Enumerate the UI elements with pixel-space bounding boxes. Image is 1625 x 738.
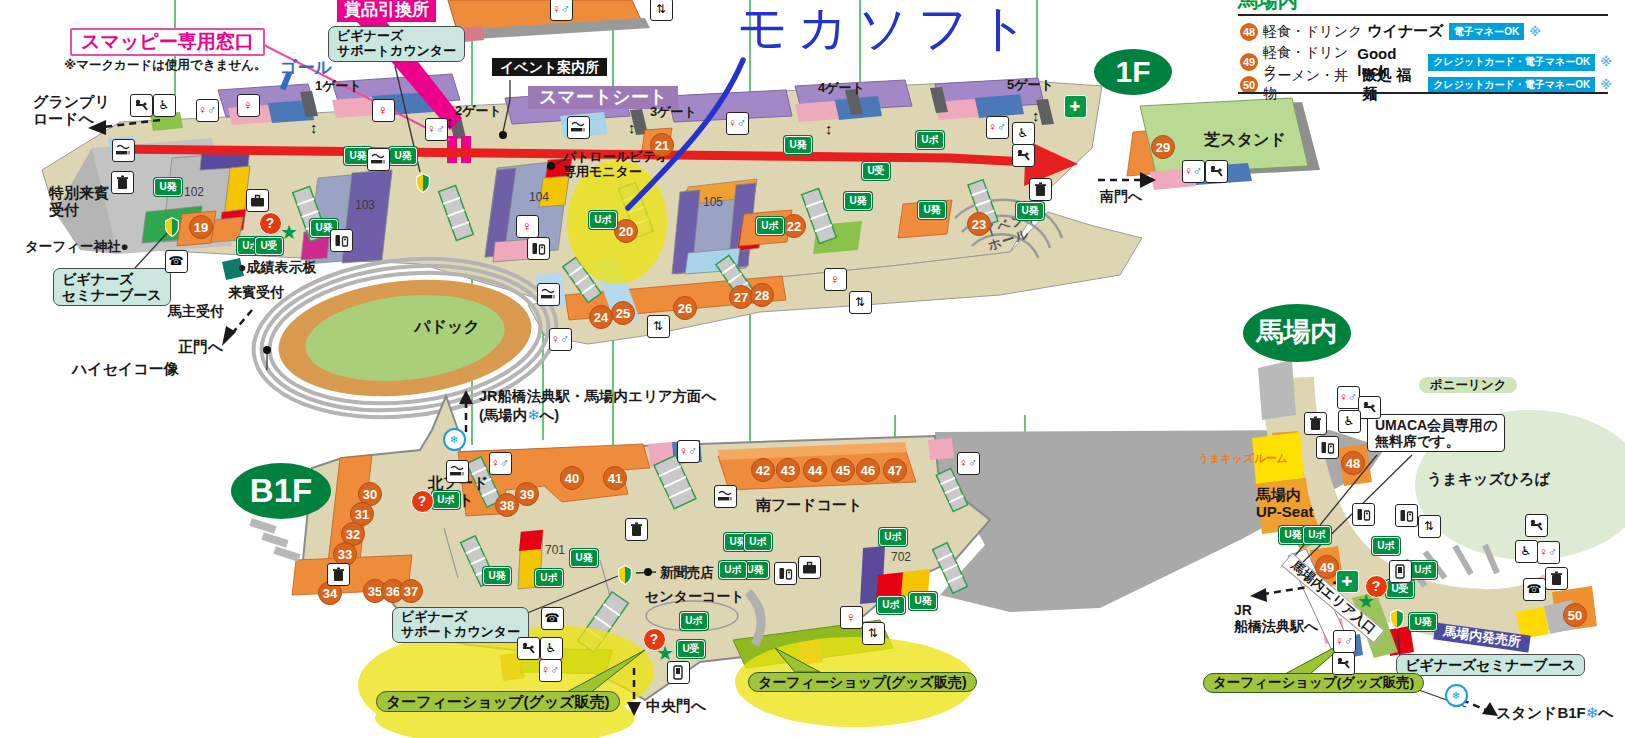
star-icon: ★	[1357, 589, 1375, 613]
legend-category: 軽食・ドリンク	[1263, 23, 1362, 41]
updown-icon: ↕	[1032, 107, 1040, 124]
question-icon: ?	[411, 490, 434, 513]
elevator-icon: ⇅	[862, 622, 885, 645]
lockers-icon	[798, 556, 821, 579]
u-badge-hatsu: U発	[1409, 613, 1437, 631]
shop-number-43: 43	[776, 458, 800, 482]
u-badge-po: Uポ	[744, 533, 772, 551]
baby-icon	[1205, 160, 1228, 183]
shop-number-48: 48	[1341, 451, 1365, 475]
restroom-icon: ♀♂	[196, 99, 219, 122]
block-102-label: 102	[184, 186, 204, 200]
turf-stand-label: 芝スタンド	[1204, 131, 1286, 149]
u-badge-po: Uポ	[1409, 561, 1437, 579]
u-badge-uke: U受	[255, 237, 283, 255]
restroom-icon: ♀♂	[1333, 630, 1356, 653]
snowflake-icon: ❄	[443, 428, 466, 451]
women-icon: ♀	[840, 606, 863, 629]
south-gate-direction: 南門へ	[1100, 188, 1142, 204]
phone-icon: ☎	[541, 607, 564, 630]
baby-icon	[1332, 652, 1355, 675]
baby-icon	[1525, 514, 1548, 537]
trash-icon	[111, 171, 134, 194]
beginners-support-counter-callout-1f: ビギナーズサポートカウンター	[328, 26, 465, 62]
grand-prix-road-direction: グランプリロードへ	[33, 93, 110, 128]
shop-number-41: 41	[603, 466, 627, 490]
newspaper-stand-label: 新聞売店	[660, 565, 714, 581]
legend-payment-badge: 電子マネーOK	[1449, 23, 1524, 40]
babanai-ticket-office-label: 馬場内発売所	[1433, 622, 1530, 652]
shop-number-26: 26	[673, 296, 697, 320]
legend-heading: 馬場内	[1238, 0, 1298, 14]
haiseiko-statue-label: ハイセイコー像	[72, 360, 179, 377]
patrol-video-label: パトロールビデオ専用モニター	[563, 150, 669, 180]
restroom-icon: ♀♂	[549, 328, 572, 351]
smoking-icon	[446, 460, 469, 483]
snowflake-icon: ❄	[1586, 704, 1599, 721]
mobile-icon	[1389, 560, 1412, 583]
u-badge-uke: U受	[862, 162, 890, 180]
smoking-icon	[537, 283, 560, 306]
star-icon: ★	[656, 641, 674, 665]
trash-icon	[1029, 178, 1052, 201]
legend-shop-name: ウイナーズ	[1367, 22, 1443, 41]
shop-number-24: 24	[589, 305, 613, 329]
shop-number-50: 50	[1563, 603, 1587, 627]
legend-item-48: 48軽食・ドリンクウイナーズ電子マネーOK※	[1240, 22, 1541, 41]
wheelchair-icon: ♿	[1012, 122, 1035, 145]
women-icon: ♀	[516, 215, 539, 238]
restroom-icon: ♀♂	[425, 118, 448, 141]
wheelchair-icon: ♿	[1338, 410, 1361, 433]
restroom-icon: ♀♂	[957, 452, 980, 475]
baby-icon	[130, 94, 153, 117]
u-badge-hatsu: U発	[918, 201, 946, 219]
shop-number-44: 44	[803, 458, 827, 482]
u-badge-po: Uポ	[1303, 526, 1331, 544]
special-guest-reception-label: 特別来賓受付	[49, 184, 109, 219]
owner-reception-label: 馬主受付	[168, 303, 224, 319]
u-badge-po: Uポ	[432, 491, 460, 509]
restroom-icon: ♀♂	[539, 659, 562, 682]
women-icon: ♀	[824, 268, 847, 291]
floor-b1f-badge: B1F	[231, 463, 331, 519]
shop-number-40: 40	[560, 466, 584, 490]
recycle-icon	[774, 562, 797, 585]
shop-number-22: 22	[782, 214, 806, 238]
baby-icon	[1358, 396, 1381, 419]
gate-4-label: 4ゲート	[818, 81, 865, 96]
restroom-icon: ♀♂	[1182, 160, 1205, 183]
recycle-icon	[1352, 503, 1375, 526]
legend-rule-top	[1238, 14, 1608, 16]
center-court-label: センターコート	[645, 588, 745, 604]
firstaid-icon: ✚	[1064, 95, 1087, 118]
block-103-label: 103	[355, 199, 375, 213]
jr-funabashi-hoten-direction: JR船橋法典駅・馬場内エリア方面へ	[479, 388, 716, 405]
beginner-icon	[616, 564, 634, 586]
uma-kids-room-label: うまキッズルーム	[1198, 452, 1288, 465]
legend-shop-name: 飯処 福麺	[1362, 66, 1423, 104]
restroom-icon: ♀♂	[1537, 541, 1560, 564]
u-badge-po: Uポ	[916, 131, 944, 149]
shop-number-39: 39	[515, 482, 539, 506]
trash-icon	[327, 563, 350, 586]
u-badge-po: Uポ	[535, 569, 563, 587]
wheelchair-icon: ♿	[153, 94, 176, 117]
mark-card-note: ※マークカードは使用できません。	[64, 58, 267, 72]
snowflake-icon: ❄	[527, 407, 539, 423]
restroom-icon: ♀♂	[726, 112, 749, 135]
floor-1f-badge: 1F	[1094, 49, 1172, 95]
racecourse-floor-map: 賞品引換所スマッピー専用窓口※マークカードは使用できません。ビギナーズサポートカ…	[0, 0, 1625, 738]
phone-icon: ☎	[165, 250, 188, 273]
snowflake-icon: ❄	[1445, 684, 1468, 707]
turfy-shop-callout-babanai: ターフィーショップ(グッズ販売)	[1203, 673, 1424, 693]
central-gate-direction: 中央門へ	[646, 697, 706, 714]
beginner-icon	[163, 216, 181, 238]
restroom-icon: ♀♂	[986, 116, 1009, 139]
shop-number-21: 21	[650, 133, 674, 157]
legend-number-badge: 48	[1240, 23, 1258, 41]
babanai-up-seat-label: 馬場内UP-Seat	[1256, 486, 1314, 521]
smoking-icon	[714, 485, 737, 508]
u-badge-uke: U受	[677, 640, 705, 658]
smoking-icon	[567, 116, 590, 139]
u-badge-po: Uポ	[879, 528, 907, 546]
u-badge-hatsu: U発	[844, 192, 872, 210]
updown-icon: ↕	[310, 119, 318, 136]
trash-icon	[1304, 412, 1327, 435]
firstaid-icon: ✚	[1336, 570, 1359, 593]
shop-number-28: 28	[750, 283, 774, 307]
elevator-icon: ⇅	[647, 315, 670, 338]
shop-number-23: 23	[967, 212, 991, 236]
shop-number-20: 20	[614, 219, 638, 243]
gate-3-label: 3ゲート	[650, 105, 697, 120]
prize-exchange-callout: 賞品引換所	[337, 0, 436, 22]
legend-rule-bottom	[1238, 92, 1608, 94]
turfy-shop-callout-right: ターフィーショップ(グッズ販売)	[748, 672, 977, 692]
u-badge-hatsu: U発	[483, 567, 511, 585]
question-icon: ?	[259, 212, 282, 235]
updown-icon: ↕	[446, 113, 454, 130]
smoking-icon	[112, 139, 135, 162]
legend-note: ※	[1529, 25, 1541, 39]
gate-2-label: 2ゲート	[455, 104, 502, 119]
u-badge-po: Uポ	[719, 561, 747, 579]
u-badge-hatsu: U発	[389, 147, 417, 165]
shop-number-37: 37	[399, 579, 423, 603]
elevator-icon: ⇅	[849, 291, 872, 314]
uma-kids-hiroba-label: うまキッズひろば	[1427, 470, 1550, 487]
u-badge-hatsu: U発	[1016, 202, 1044, 220]
beginner-icon	[414, 172, 432, 194]
block-105-label: 105	[703, 196, 723, 210]
recycle-icon	[1395, 504, 1418, 527]
trash-icon	[1545, 567, 1568, 590]
babanai-area-badge: 馬場内	[1243, 304, 1351, 362]
legend-note: ※	[1600, 78, 1612, 92]
u-badge-hatsu: U発	[909, 592, 937, 610]
guest-reception-label: 来賓受付	[228, 284, 284, 300]
updown-icon: ↕	[825, 120, 833, 137]
recycle-icon	[527, 237, 550, 260]
handwritten-mocha-soft: モカソフト	[737, 0, 1038, 58]
main-gate-direction: 正門へ	[178, 338, 223, 355]
smoking-icon	[367, 148, 390, 171]
pony-link-label: ポニーリンク	[1419, 377, 1517, 393]
shop-number-19: 19	[189, 215, 213, 239]
baby-icon	[517, 637, 540, 660]
jr-funabashi-hoten-station-direction: JR船橋法典駅へ	[1234, 602, 1318, 634]
trash-icon	[625, 518, 648, 541]
restroom-icon: ♀♂	[677, 440, 700, 463]
shop-number-29: 29	[1151, 135, 1175, 159]
women-icon: ♀	[372, 99, 395, 122]
legend-category: ラーメン・丼物	[1263, 67, 1357, 103]
women-icon: ♀	[237, 94, 260, 117]
smappy-window-callout: スマッピー専用窓口	[70, 28, 265, 56]
star-icon: ★	[280, 220, 298, 244]
legend-payment-badge: クレジットカード・電子マネーOK	[1428, 77, 1595, 94]
gate-1-label: 1ゲート	[315, 79, 362, 94]
block-104-label: 104	[529, 191, 549, 205]
map-overlay: 賞品引換所スマッピー専用窓口※マークカードは使用できません。ビギナーズサポートカ…	[0, 0, 1625, 738]
u-badge-po: Uポ	[589, 211, 617, 229]
beginners-seminar-booth-callout-1f: ビギナーズセミナーブース	[53, 268, 171, 306]
block-702-label: 702	[891, 551, 911, 565]
u-badge-hatsu: U発	[570, 549, 598, 567]
shop-number-47: 47	[883, 458, 907, 482]
wheelchair-icon: ♿	[1515, 540, 1538, 563]
shop-number-25: 25	[611, 301, 635, 325]
u-badge-po: Uポ	[680, 612, 708, 630]
restroom-icon: ♀♂	[489, 452, 512, 475]
shop-number-45: 45	[831, 458, 855, 482]
u-badge-po: Uポ	[1372, 537, 1400, 555]
elevator-icon: ⇅	[650, 0, 673, 21]
paddock-label: パドック	[414, 318, 480, 336]
gate-5-label: 5ゲート	[1007, 78, 1054, 93]
u-badge-uke: U受	[1386, 580, 1414, 598]
south-food-court-label: 南フードコート	[756, 496, 862, 513]
baby-icon	[1012, 144, 1035, 167]
umaca-note-callout: UMACA会員専用の無料席です。	[1367, 414, 1505, 452]
legend-item-50: 50ラーメン・丼物飯処 福麺クレジットカード・電子マネーOK※	[1240, 66, 1612, 104]
results-board-label: ●成績表示板	[238, 259, 316, 275]
updown-icon: ↕	[628, 119, 636, 136]
u-badge-po: Uポ	[877, 596, 905, 614]
recycle-icon	[1316, 436, 1339, 459]
beginners-support-counter-callout-b1f: ビギナーズサポートカウンター	[392, 607, 529, 643]
wheelchair-icon: ♿	[540, 637, 563, 660]
restroom-icon: ♀♂	[1337, 386, 1360, 409]
u-badge-po: Uポ	[756, 217, 784, 235]
turfy-shrine-label: ターフィー神社●	[25, 239, 129, 255]
lockers-icon	[246, 189, 269, 212]
u-badge-hatsu: U発	[154, 178, 182, 196]
phone-icon: ☎	[1523, 578, 1546, 601]
beginners-seminar-booth-callout-babanai: ビギナーズセミナーブース	[1396, 654, 1585, 676]
event-info-callout: イベント案内所	[492, 58, 607, 76]
recycle-icon	[330, 229, 353, 252]
beginner-icon	[1388, 608, 1406, 630]
elevator-icon: ⇅	[1418, 515, 1441, 538]
shop-number-46: 46	[856, 458, 880, 482]
u-badge-hatsu: U発	[784, 136, 812, 154]
stand-b1f-direction: スタンドB1F❄へ	[1496, 704, 1614, 721]
turfy-shop-callout-left: ターフィーショップ(グッズ販売)	[376, 691, 620, 712]
block-701-label: 701	[545, 544, 565, 558]
shop-number-42: 42	[751, 458, 775, 482]
restroom-icon: ♀♂	[550, 0, 573, 21]
babanai-snow-direction: (馬場内❄へ)	[479, 407, 559, 424]
